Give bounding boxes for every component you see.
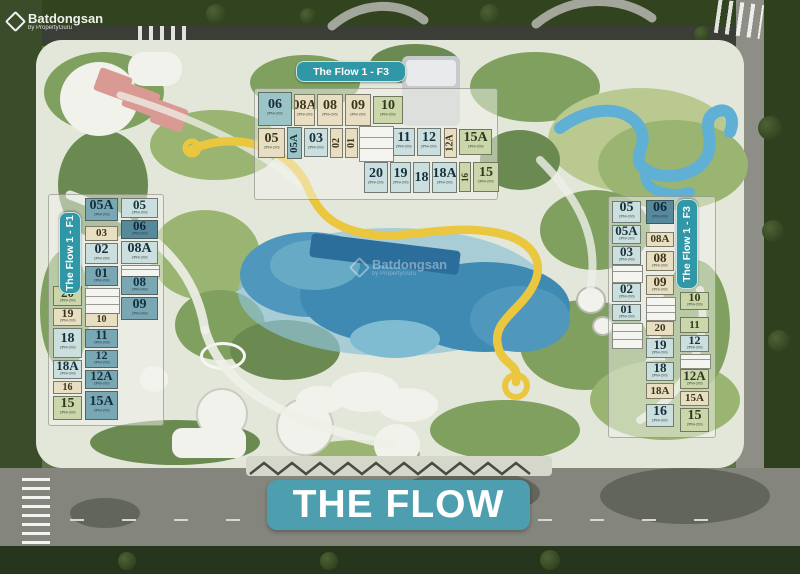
unit-cell-right-16: 162PN+2VS bbox=[646, 404, 674, 427]
unit-cell-left-05: 052PN+2VS bbox=[121, 198, 158, 218]
building-label-left-text: The Flow 1 - F1 bbox=[64, 215, 76, 291]
unit-cell-top-10: 102PN+2VS bbox=[373, 96, 403, 124]
brand-name: Batdongsan bbox=[372, 258, 447, 271]
unit-cell-right-19: 192PN+2VS bbox=[646, 338, 674, 358]
unit-cell-right-05A: 05A2PN+2VS bbox=[612, 225, 641, 244]
unit-cell-top-19: 192PN+2VS bbox=[390, 162, 411, 193]
building-label-right: The Flow 1 - F3 bbox=[676, 199, 698, 289]
unit-cell-right-18: 182PN+2VS bbox=[646, 362, 674, 381]
unit-cell-top-18A: 18A2PN+2VS bbox=[432, 162, 457, 193]
unit-cell-left-12: 122PN+2VS bbox=[85, 350, 118, 368]
unit-cell-left-15A: 15A2PN+2VS bbox=[85, 391, 118, 420]
unit-cell-left-08: 082PN+2VS bbox=[121, 276, 158, 295]
unit-cell-left-18A: 18A2PN+2VS bbox=[53, 360, 82, 379]
building-label-right-text: The Flow 1 - F3 bbox=[681, 206, 693, 282]
unit-cell-right-08: 082PN+2VS bbox=[646, 251, 674, 271]
unit-cell-right-09: 092PN+2VS bbox=[646, 275, 674, 295]
unit-cell-left-19: 192PN+2VS bbox=[53, 308, 82, 326]
unit-cell-top-05A: 05A bbox=[287, 127, 302, 159]
unit-cell-right-11: 11 bbox=[680, 317, 709, 333]
unit-cell-right-01: 012PN+2VS bbox=[612, 304, 641, 321]
unit-cell-top-15A: 15A2PN+2VS bbox=[459, 129, 492, 155]
unit-cell-top-11: 112PN+2VS bbox=[393, 128, 415, 156]
unit-cell-left-09: 092PN+2VS bbox=[121, 297, 158, 320]
unit-cell-right-08A: 08A bbox=[646, 232, 674, 247]
unit-cell-left-08A: 08A2PN+2VS bbox=[121, 241, 158, 264]
unit-cell-right-10: 102PN+2VS bbox=[680, 292, 709, 310]
unit-cell-top-08A: 08A2PN+2VS bbox=[294, 94, 315, 126]
unit-cell-left-18: 182PN+2VS bbox=[53, 328, 82, 358]
unit-cell-top-05: 052PN+2VS bbox=[258, 128, 285, 158]
unit-cell-top-03: 032PN+2VS bbox=[304, 128, 328, 157]
unit-cell-top-02: 02 bbox=[330, 128, 343, 158]
unit-cell-left-06: 062PN+2VS bbox=[121, 220, 158, 239]
project-title: THE FLOW bbox=[293, 483, 505, 527]
watermark-top-left: Batdongsan by PropertyGuru bbox=[8, 12, 103, 31]
brand-diamond-icon bbox=[349, 257, 370, 278]
unit-cell-top-08: 082PN+2VS bbox=[317, 94, 343, 126]
watermark-center: Batdongsan by PropertyGuru bbox=[352, 258, 447, 277]
brand-name: Batdongsan bbox=[28, 12, 103, 25]
unit-cell-left-10: 10 bbox=[85, 313, 118, 327]
unit-cell-right-02: 022PN+2VS bbox=[612, 283, 641, 302]
unit-cell-right-06: 062PN+2VS bbox=[646, 200, 674, 224]
brand-diamond-icon bbox=[5, 11, 26, 32]
unit-cell-top-20: 202PN+2VS bbox=[364, 162, 388, 193]
brand-subtitle: by PropertyGuru bbox=[372, 271, 447, 277]
brand-subtitle: by PropertyGuru bbox=[28, 25, 103, 31]
unit-cell-left-02: 022PN+2VS bbox=[85, 243, 118, 264]
unit-cell-top-09: 092PN+2VS bbox=[345, 94, 371, 126]
unit-cell-right-03: 032PN+2VS bbox=[612, 246, 641, 265]
unit-cell-top-18: 18 bbox=[413, 162, 430, 193]
unit-cell-left-16: 16 bbox=[53, 381, 82, 394]
building-label-top: The Flow 1 - F3 bbox=[296, 61, 406, 82]
unit-cell-top-15: 152PN+2VS bbox=[473, 162, 499, 192]
unit-cell-left-12A: 12A2PN+2VS bbox=[85, 370, 118, 389]
unit-cell-left-03: 03 bbox=[85, 226, 118, 241]
building-label-left: The Flow 1 - F1 bbox=[59, 212, 81, 294]
unit-cell-right-12A: 12A2PN+2VS bbox=[680, 369, 709, 389]
unit-cell-top-12A: 12A bbox=[444, 128, 457, 158]
unit-cell-right-18A: 18A bbox=[646, 383, 674, 399]
unit-cell-left-11: 112PN+2VS bbox=[85, 329, 118, 348]
project-title-banner: THE FLOW bbox=[267, 480, 530, 530]
unit-cell-left-05A: 05A2PN+2VS bbox=[85, 198, 118, 221]
unit-cell-right-15A: 15A bbox=[680, 391, 709, 406]
unit-cell-left-01: 012PN+2VS bbox=[85, 266, 118, 286]
unit-cell-right-12: 122PN+2VS bbox=[680, 335, 709, 352]
unit-cell-top-12: 122PN+2VS bbox=[417, 128, 441, 156]
unit-cell-left-15: 152PN+2VS bbox=[53, 396, 82, 420]
building-label-top-text: The Flow 1 - F3 bbox=[313, 66, 389, 78]
unit-cell-right-05: 052PN+2VS bbox=[612, 201, 641, 223]
unit-cell-top-01: 01 bbox=[345, 128, 358, 158]
unit-cell-right-15: 152PN+2VS bbox=[680, 408, 709, 432]
unit-cell-right-20: 20 bbox=[646, 321, 674, 336]
unit-cell-top-06: 062PN+2VS bbox=[258, 92, 292, 126]
unit-cell-top-16: 16 bbox=[459, 162, 471, 192]
